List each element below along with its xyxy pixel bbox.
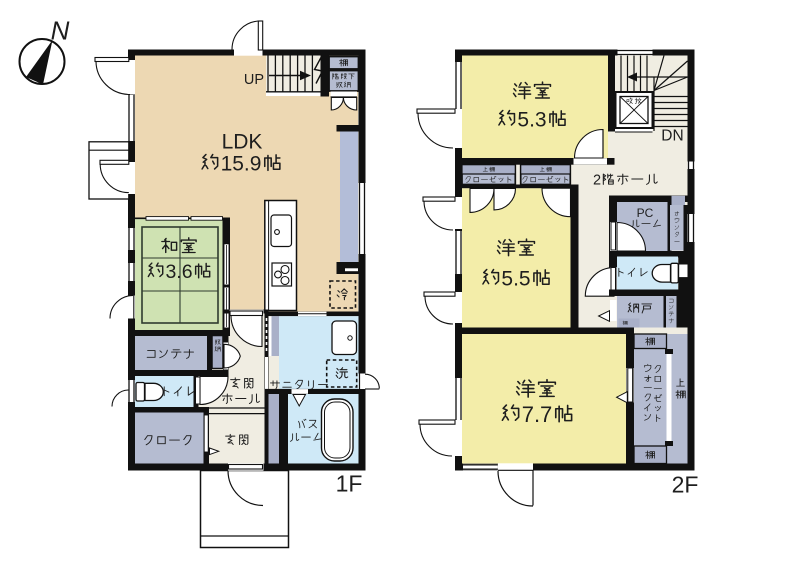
svg-text:3.6: 3.6 bbox=[165, 261, 192, 283]
svg-text:2F: 2F bbox=[672, 471, 699, 497]
svg-text:7.7: 7.7 bbox=[522, 402, 553, 427]
svg-text:LDK: LDK bbox=[222, 131, 263, 154]
svg-text:DN: DN bbox=[661, 128, 683, 145]
svg-text:15.9: 15.9 bbox=[221, 153, 262, 176]
svg-text:N: N bbox=[51, 15, 70, 45]
svg-text:2: 2 bbox=[593, 173, 601, 189]
svg-text:PC: PC bbox=[637, 206, 654, 220]
svg-text:5.3: 5.3 bbox=[517, 109, 546, 132]
svg-text:1F: 1F bbox=[336, 470, 363, 496]
svg-text:5.5: 5.5 bbox=[501, 268, 530, 291]
svg-text:UP: UP bbox=[244, 72, 264, 88]
